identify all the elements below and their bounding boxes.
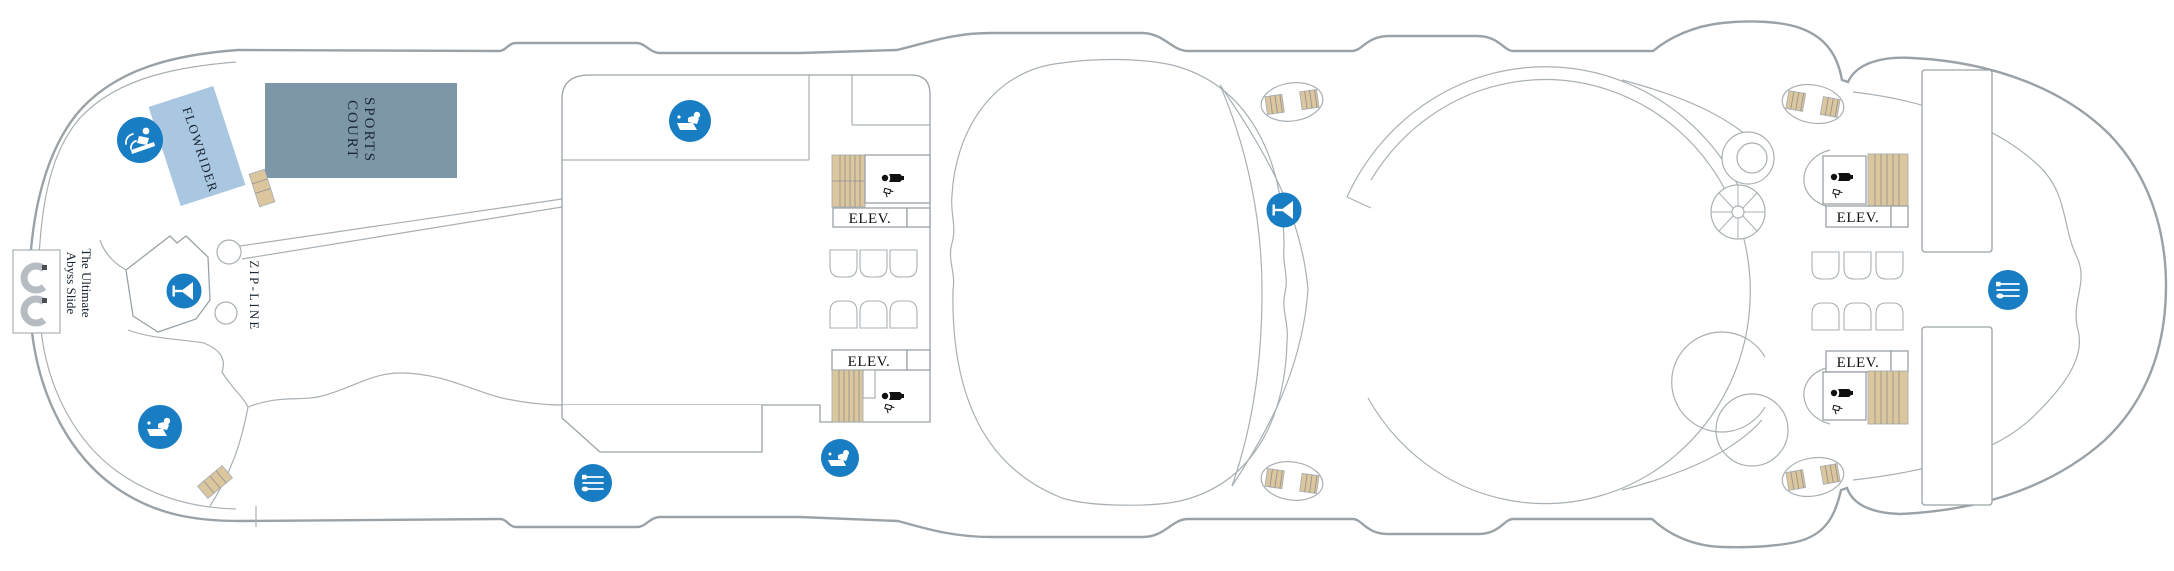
svg-text:SPORTS: SPORTS xyxy=(361,97,377,163)
svg-text:ELEV.: ELEV. xyxy=(1837,210,1880,226)
ultimate-abyss-slide[interactable] xyxy=(13,250,60,333)
forward-lower-stairs[interactable] xyxy=(1868,371,1908,424)
bow-room-lower xyxy=(1922,327,1992,505)
restroom-person-icon xyxy=(1831,173,1853,181)
forward-upper-elevator[interactable]: ELEV. xyxy=(1826,206,1908,227)
bar-martini-icon[interactable] xyxy=(167,274,202,309)
midship-deckhouse: ELEV. ELEV. xyxy=(562,75,930,452)
svg-text:ZIP-LINE: ZIP-LINE xyxy=(247,260,261,331)
slide-entry-1 xyxy=(42,265,47,270)
dining-icon[interactable] xyxy=(574,464,612,502)
zipline-label: ZIP-LINE xyxy=(247,260,261,331)
forward-lower-elevator[interactable]: ELEV. xyxy=(1826,351,1908,372)
sports-court-label: SPORTS COURT xyxy=(344,97,377,163)
dining-icon[interactable] xyxy=(1988,270,2028,310)
restroom-person-icon xyxy=(882,174,904,182)
svg-text:The Ultimate: The Ultimate xyxy=(79,249,94,318)
bow-room-upper xyxy=(1922,70,1992,252)
svg-text:ELEV.: ELEV. xyxy=(849,211,892,227)
svg-text:Abyss Slide: Abyss Slide xyxy=(64,252,79,315)
deck-plan: SPORTS COURT FLOWRIDER The Ultimate Abys… xyxy=(0,0,2174,571)
restroom-person-icon xyxy=(1831,389,1853,397)
table-tennis-icon[interactable] xyxy=(669,100,711,142)
deckhouse-annex xyxy=(562,405,762,452)
midship-upper-stairs[interactable] xyxy=(832,155,865,207)
zipline-tower-1 xyxy=(217,240,241,264)
bar-martini-icon[interactable] xyxy=(1267,193,1302,228)
table-tennis-icon[interactable] xyxy=(821,439,859,477)
svg-text:ELEV.: ELEV. xyxy=(1837,355,1880,371)
ultimate-abyss-label: The Ultimate Abyss Slide xyxy=(64,249,94,318)
svg-text:ELEV.: ELEV. xyxy=(848,354,891,370)
surfing-icon[interactable] xyxy=(117,117,163,163)
table-tennis-icon[interactable] xyxy=(138,405,182,449)
midship-lower-elevator[interactable]: ELEV. xyxy=(832,350,930,370)
forward-upper-stairs[interactable] xyxy=(1868,154,1908,207)
svg-text:COURT: COURT xyxy=(344,100,360,160)
restroom-person-icon xyxy=(882,392,904,400)
zipline-tower-2 xyxy=(215,302,237,324)
midship-upper-elevator[interactable]: ELEV. xyxy=(833,208,930,227)
sports-court-area[interactable] xyxy=(265,83,457,178)
slide-entry-2 xyxy=(42,298,47,303)
